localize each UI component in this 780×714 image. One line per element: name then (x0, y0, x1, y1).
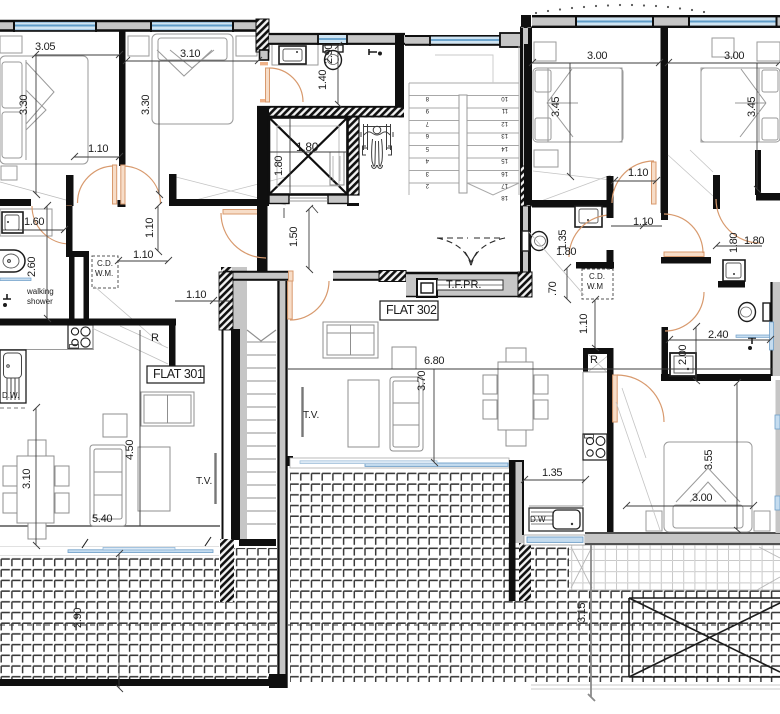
svg-text:3.00: 3.00 (587, 50, 607, 62)
svg-text:1.10: 1.10 (578, 314, 590, 334)
svg-text:3.45: 3.45 (746, 97, 758, 117)
svg-text:11: 11 (501, 107, 508, 113)
svg-text:16: 16 (501, 170, 508, 176)
svg-text:3.30: 3.30 (18, 95, 30, 115)
svg-text:1.10: 1.10 (186, 289, 206, 301)
svg-text:walking: walking (26, 287, 54, 296)
svg-text:2.40: 2.40 (708, 329, 728, 341)
svg-text:1.35: 1.35 (542, 467, 562, 479)
svg-text:3.10: 3.10 (21, 469, 33, 489)
svg-text:3.55: 3.55 (703, 450, 715, 470)
svg-text:1.80: 1.80 (728, 233, 740, 253)
svg-text:6.80: 6.80 (424, 355, 444, 367)
svg-text:10: 10 (501, 95, 508, 101)
svg-text:2.00: 2.00 (677, 345, 689, 365)
svg-text:1.10: 1.10 (133, 249, 153, 261)
svg-text:3.10: 3.10 (180, 48, 200, 60)
svg-text:FLAT 301: FLAT 301 (153, 367, 204, 381)
svg-text:3.00: 3.00 (724, 50, 744, 62)
svg-text:R: R (151, 332, 159, 344)
svg-text:T.V.: T.V. (303, 410, 319, 421)
svg-text:5.40: 5.40 (92, 513, 112, 525)
svg-text:T.V.: T.V. (196, 476, 212, 487)
svg-text:14: 14 (501, 145, 508, 151)
svg-text:.70: .70 (547, 281, 559, 296)
svg-text:18: 18 (501, 194, 508, 200)
svg-text:R: R (590, 354, 598, 366)
svg-text:T.F.PR.: T.F.PR. (446, 279, 481, 291)
svg-text:4.50: 4.50 (124, 440, 136, 460)
svg-text:3.70: 3.70 (416, 371, 428, 391)
svg-text:C.D.: C.D. (589, 272, 605, 281)
svg-text:1.40: 1.40 (317, 70, 329, 90)
svg-text:W.M.: W.M. (95, 269, 113, 278)
svg-text:FLAT 302: FLAT 302 (386, 303, 437, 317)
svg-text:W.M: W.M (587, 282, 603, 291)
svg-text:shower: shower (27, 297, 53, 306)
svg-text:13: 13 (501, 132, 508, 138)
svg-text:17: 17 (501, 182, 508, 188)
svg-text:3.05: 3.05 (35, 41, 55, 53)
svg-text:12: 12 (501, 120, 508, 126)
svg-text:1.10: 1.10 (628, 167, 648, 179)
svg-text:3.00: 3.00 (692, 492, 712, 504)
svg-text:2.60: 2.60 (26, 257, 38, 277)
svg-text:1.60: 1.60 (24, 216, 44, 228)
svg-text:2.90: 2.90 (72, 608, 84, 628)
svg-text:1.50: 1.50 (288, 227, 300, 247)
svg-text:15: 15 (501, 157, 508, 163)
svg-text:2.90: 2.90 (323, 44, 335, 64)
svg-text:1.80: 1.80 (744, 235, 764, 247)
svg-text:1.10: 1.10 (88, 143, 108, 155)
svg-text:3.45: 3.45 (550, 97, 562, 117)
svg-text:D.W: D.W (530, 515, 546, 524)
svg-text:C.D.: C.D. (97, 259, 113, 268)
svg-text:3.30: 3.30 (140, 95, 152, 115)
svg-text:1.10: 1.10 (144, 218, 156, 238)
svg-text:1.35: 1.35 (557, 230, 569, 250)
svg-text:D.W.: D.W. (2, 391, 19, 400)
svg-text:3.15: 3.15 (576, 603, 588, 623)
svg-text:1.80: 1.80 (273, 156, 285, 176)
